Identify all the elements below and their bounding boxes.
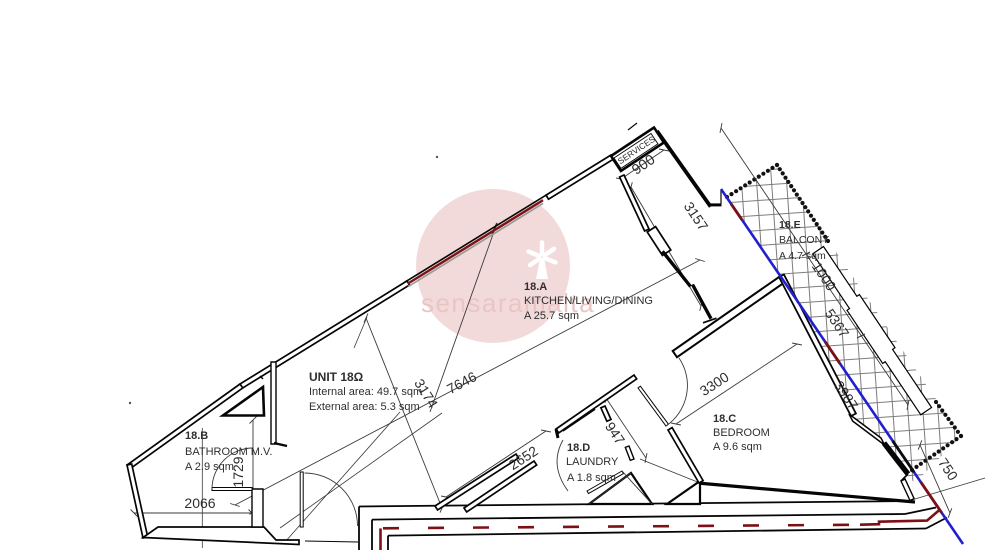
svg-text:A 4.7 sqm: A 4.7 sqm [779, 250, 826, 262]
svg-text:2066: 2066 [184, 495, 215, 511]
svg-text:UNIT 18Ω: UNIT 18Ω [309, 370, 364, 384]
svg-text:External area: 5.3 sqm: External area: 5.3 sqm [309, 401, 420, 413]
svg-text:BATHROOM M.V.: BATHROOM M.V. [185, 446, 272, 458]
svg-text:18.D: 18.D [567, 442, 590, 454]
svg-text:18.E: 18.E [779, 219, 801, 231]
svg-text:LAUNDRY: LAUNDRY [566, 456, 619, 468]
svg-text:A 9.6 sqm: A 9.6 sqm [713, 441, 762, 453]
svg-text:18.C: 18.C [713, 413, 736, 425]
svg-text:BEDROOM: BEDROOM [713, 427, 770, 439]
svg-text:A 2.9 sqm: A 2.9 sqm [185, 461, 234, 473]
svg-text:BALCONY: BALCONY [779, 234, 829, 246]
svg-text:18.A: 18.A [524, 281, 547, 293]
svg-text:A 25.7 sqm: A 25.7 sqm [524, 310, 579, 322]
svg-text:18.B: 18.B [185, 430, 208, 442]
svg-text:KITCHEN/LIVING/DINING: KITCHEN/LIVING/DINING [524, 295, 653, 307]
svg-text:Internal area: 49.7 sqm: Internal area: 49.7 sqm [309, 386, 422, 398]
svg-text:A 1.8 sqm: A 1.8 sqm [567, 472, 616, 484]
